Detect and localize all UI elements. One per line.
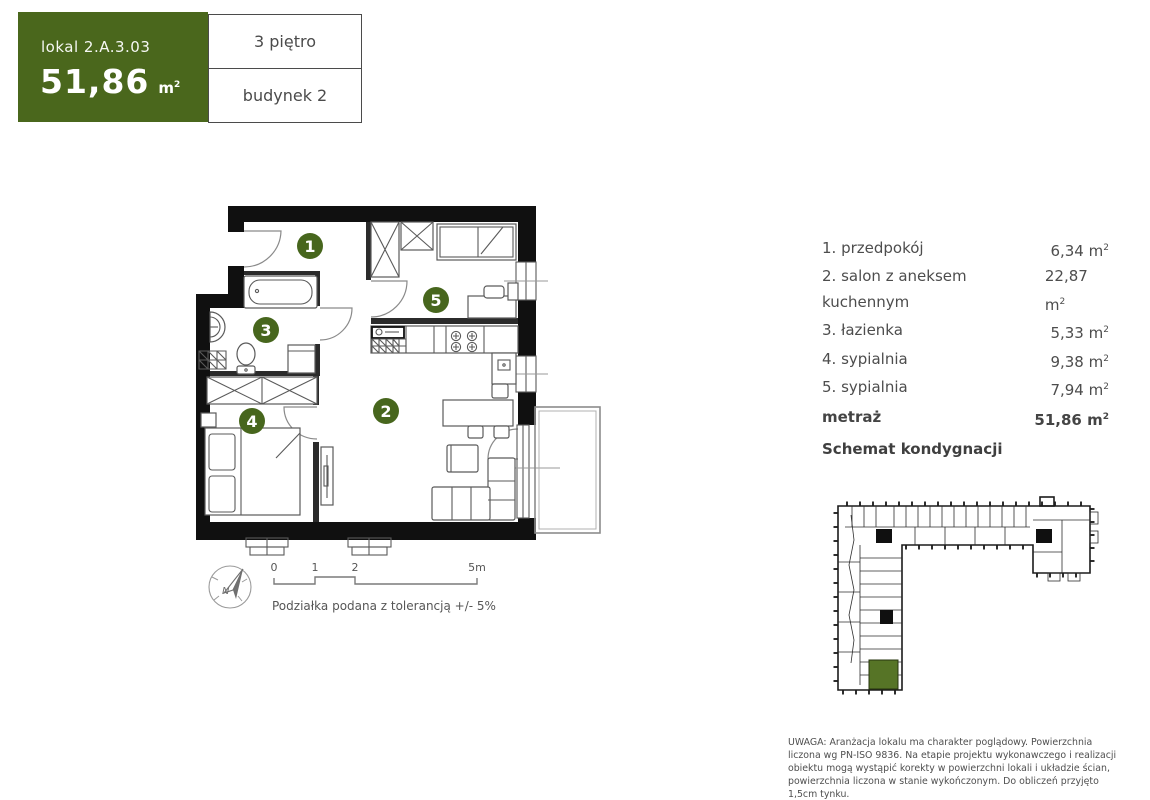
unit-summary-card: lokal 2.A.3.03 51,86 m2 [18,12,208,122]
room-area-table: 1. przedpokój 6,34 m2 2. salon z aneksem… [822,236,1109,434]
table-row: 2. salon z aneksem kuchennym 22,87 m2 [822,264,1109,318]
svg-text:3: 3 [260,321,271,340]
kitchen-counter [371,326,518,353]
dining-table [443,384,513,438]
total-area-row: metraż 51,86 m2 [822,405,1109,433]
room-label-3: 3 [253,317,279,343]
svg-text:5m: 5m [468,561,486,574]
svg-text:N: N [222,586,230,597]
room-label-4: 4 [239,408,265,434]
svg-text:4: 4 [246,412,257,431]
unit-area-unit: m2 [158,79,180,97]
unit-info-cells: 3 piętro budynek 2 [208,14,362,123]
balcony [535,407,600,533]
apartment-floorplan: 1 5 3 2 4 [190,198,620,558]
shelf-icon [508,283,518,300]
compass-icon: N [209,566,251,608]
tv-icon [321,447,333,505]
floor-schematic [820,488,1130,718]
bath-cabinet-icon [288,345,315,373]
table-row: 5. sypialnia 7,94 m2 [822,375,1109,403]
bed-single-icon [437,224,516,260]
table-row: 4. sypialnia 9,38 m2 [822,347,1109,375]
kitchen-sink-icon [372,327,404,338]
svg-text:5: 5 [430,291,441,310]
scale-tolerance-note: Podziałka podana z tolerancją +/- 5% [272,599,496,613]
unit-area: 51,86 m2 [40,62,180,101]
floor-cell: 3 piętro [208,14,362,69]
table-row: 1. przedpokój 6,34 m2 [822,236,1109,264]
building-cell: budynek 2 [208,68,362,123]
wardrobe-icon [371,222,433,277]
unit-area-value: 51,86 [40,62,149,101]
disclaimer-note: UWAGA: Aranżacja lokalu ma charakter pog… [788,737,1126,800]
wardrobe-icon [207,377,317,404]
armchair-icon [447,445,478,472]
bathtub-icon [244,276,317,308]
room-label-5: 5 [423,287,449,313]
room-label-2: 2 [373,398,399,424]
svg-text:1: 1 [312,561,319,574]
toilet-icon [237,343,255,374]
svg-text:2: 2 [380,402,391,421]
svg-text:1: 1 [304,237,315,256]
scale-bar: 0 1 2 5m [271,561,486,584]
svg-text:0: 0 [271,561,278,574]
schematic-title: Schemat kondygnacji [822,440,1002,458]
floorplan-page: lokal 2.A.3.03 51,86 m2 3 piętro budynek… [0,0,1150,800]
sink-icon [210,312,225,342]
svg-text:2: 2 [352,561,359,574]
room-label-1: 1 [297,233,323,259]
table-row: 3. łazienka 5,33 m2 [822,318,1109,346]
fridge-icon [492,353,516,384]
unit-id: lokal 2.A.3.03 [41,38,150,56]
highlighted-unit [869,660,898,689]
